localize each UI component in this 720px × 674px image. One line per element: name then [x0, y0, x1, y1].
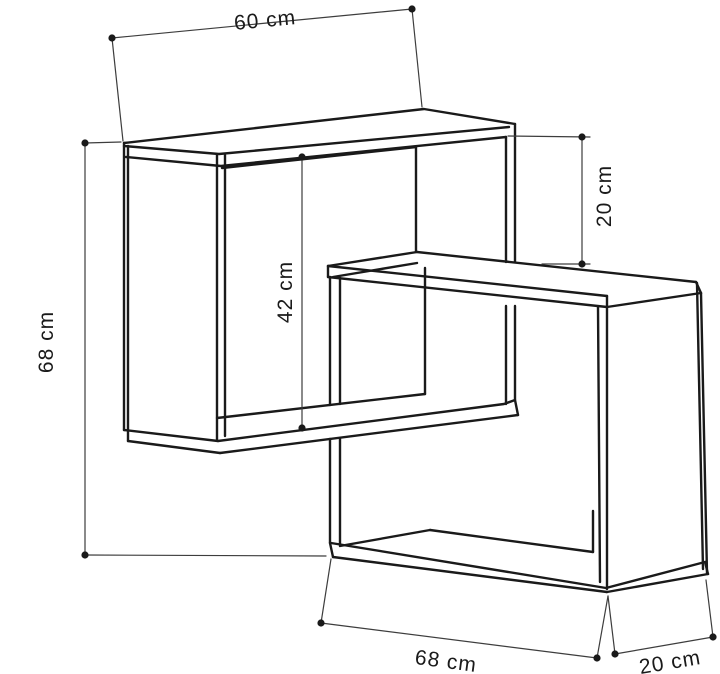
dim-label-bottom-depth: 20 cm: [638, 646, 703, 674]
shelf-technical-drawing: 60 cm 20 cm 42 cm 68 cm 68 cm 20 cm: [0, 0, 720, 674]
dim-label-bottom-width: 68 cm: [414, 646, 479, 674]
dimension-endpoint-dots: [81, 5, 716, 661]
dimension-labels: 60 cm 20 cm 42 cm 68 cm 68 cm 20 cm: [35, 6, 703, 674]
dim-label-inner-height: 42 cm: [274, 261, 297, 323]
dim-label-top-width: 60 cm: [233, 6, 297, 35]
drawing-canvas: 60 cm 20 cm 42 cm 68 cm 68 cm 20 cm: [0, 0, 720, 674]
dimension-lines: [85, 9, 713, 658]
dim-label-right-offset-height: 20 cm: [593, 165, 616, 227]
dim-label-left-total-height: 68 cm: [35, 311, 58, 373]
shelf-structure-lines: [124, 109, 708, 592]
